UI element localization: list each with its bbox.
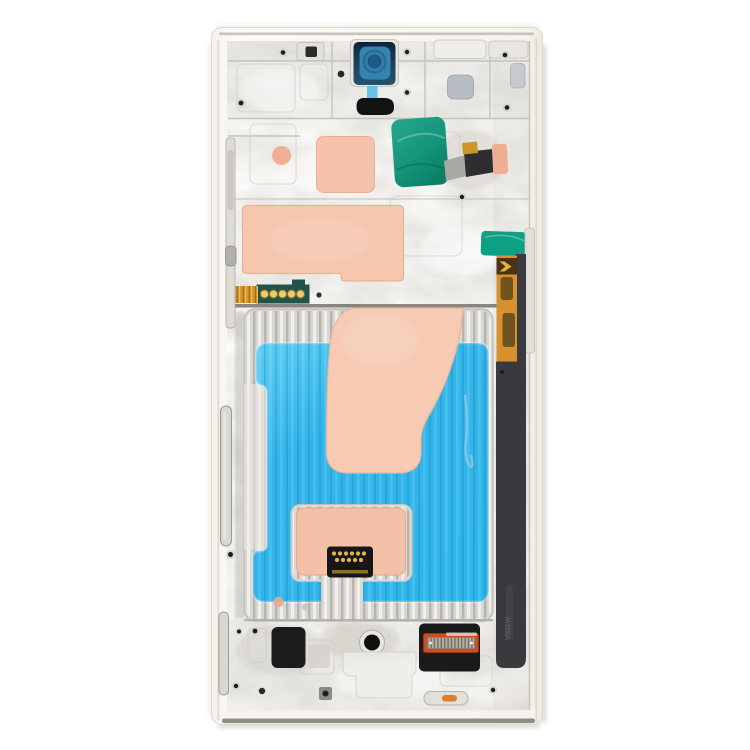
svg-text:VS11W: VS11W: [505, 616, 512, 640]
